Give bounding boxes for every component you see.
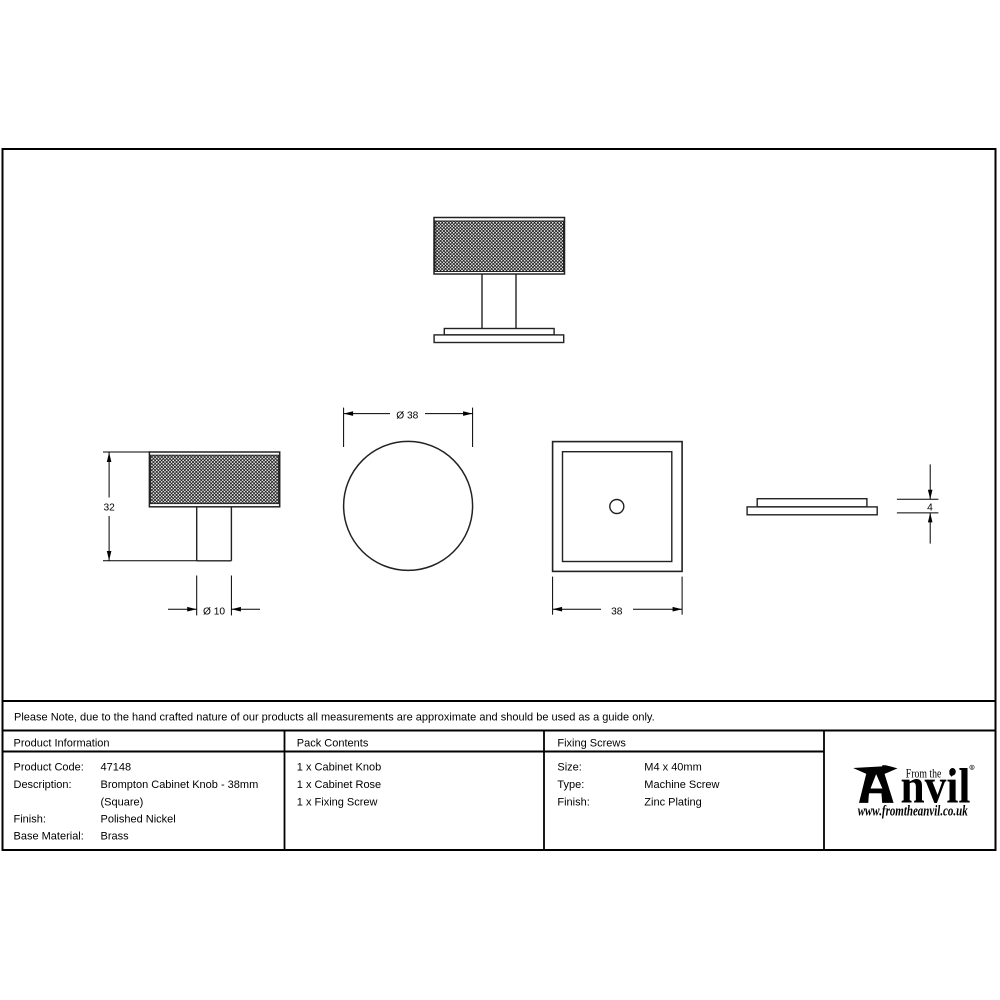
- svg-text:M4 x 40mm: M4 x 40mm: [644, 762, 701, 774]
- svg-text:Ø 38: Ø 38: [396, 411, 418, 422]
- svg-text:4: 4: [927, 503, 933, 514]
- svg-text:R: R: [971, 765, 974, 770]
- svg-text:Product Code:: Product Code:: [14, 762, 84, 774]
- svg-text:Size:: Size:: [557, 762, 581, 774]
- svg-text:1 x Fixing Screw: 1 x Fixing Screw: [297, 796, 378, 808]
- svg-text:www.fromtheanvil.co.uk: www.fromtheanvil.co.uk: [858, 804, 968, 820]
- svg-text:Please Note, due to the hand c: Please Note, due to the hand crafted nat…: [14, 712, 655, 724]
- svg-text:Finish:: Finish:: [14, 813, 46, 825]
- svg-text:Type:: Type:: [557, 779, 584, 791]
- svg-text:Base Material:: Base Material:: [14, 831, 84, 843]
- svg-text:32: 32: [104, 502, 116, 513]
- svg-text:1 x Cabinet Rose: 1 x Cabinet Rose: [297, 779, 381, 791]
- svg-text:Finish:: Finish:: [557, 796, 589, 808]
- svg-text:Machine Screw: Machine Screw: [644, 779, 719, 791]
- svg-text:Fixing Screws: Fixing Screws: [557, 738, 626, 750]
- svg-text:Ø 10: Ø 10: [203, 607, 225, 618]
- svg-text:Product Information: Product Information: [14, 738, 110, 750]
- svg-text:Description:: Description:: [14, 779, 72, 791]
- svg-text:Polished Nickel: Polished Nickel: [101, 813, 176, 825]
- svg-text:From the: From the: [906, 765, 942, 780]
- svg-text:38: 38: [611, 606, 623, 617]
- svg-text:47148: 47148: [101, 762, 132, 774]
- svg-text:Brompton Cabinet Knob - 38mm: Brompton Cabinet Knob - 38mm: [101, 779, 259, 791]
- svg-text:Zinc Plating: Zinc Plating: [644, 796, 701, 808]
- svg-text:(Square): (Square): [101, 796, 144, 808]
- svg-text:Brass: Brass: [101, 831, 130, 843]
- svg-text:1 x Cabinet Knob: 1 x Cabinet Knob: [297, 762, 381, 774]
- svg-text:Pack Contents: Pack Contents: [297, 738, 369, 750]
